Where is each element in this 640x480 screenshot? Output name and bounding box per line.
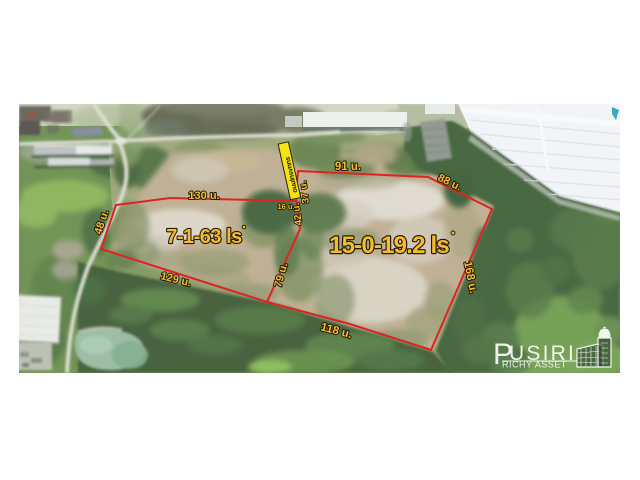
svg-text:7-1-63 ls: 7-1-63 ls (166, 226, 242, 248)
svg-text:15-0-19.2 ls: 15-0-19.2 ls (329, 232, 449, 259)
svg-text:130 u.: 130 u. (188, 190, 219, 202)
svg-text:RICHY ASSET: RICHY ASSET (502, 360, 567, 370)
svg-text:91 u.: 91 u. (335, 161, 361, 173)
